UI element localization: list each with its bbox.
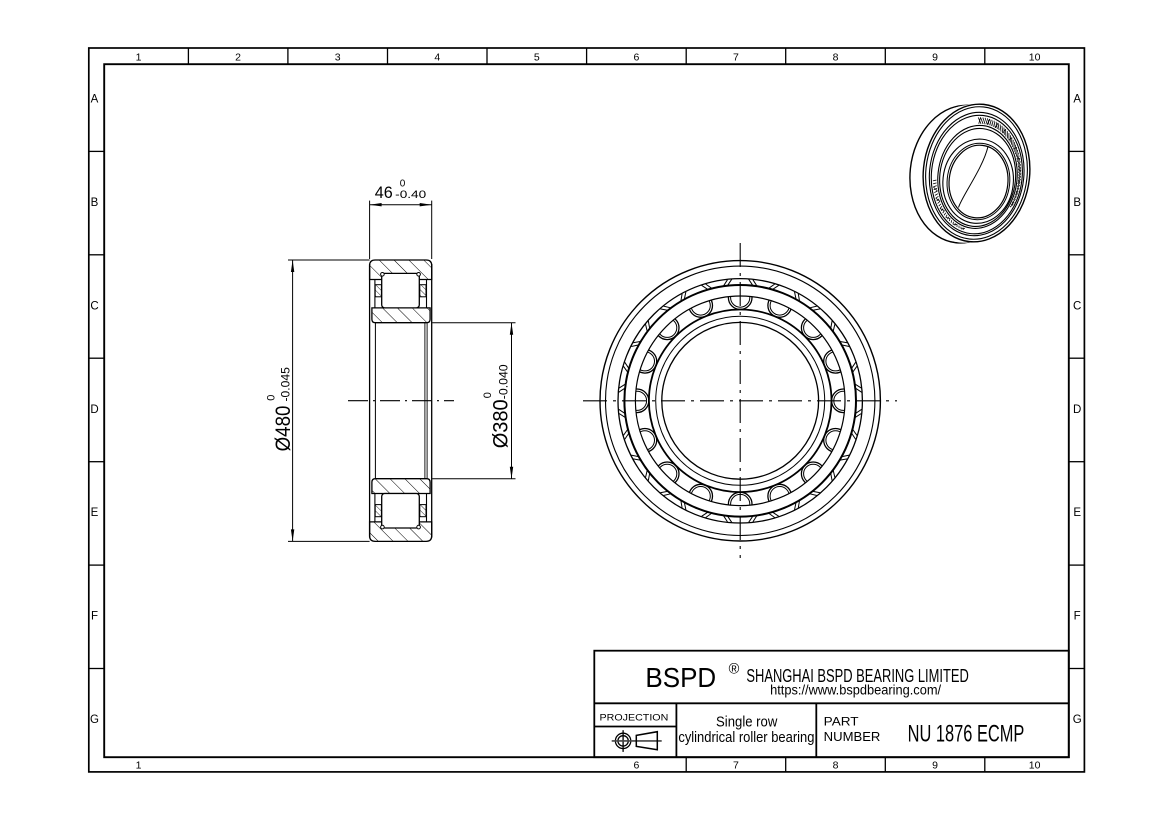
svg-text:1: 1 <box>136 759 142 771</box>
svg-text:7: 7 <box>733 51 739 63</box>
svg-text:PART: PART <box>824 715 860 729</box>
svg-text:®: ® <box>729 662 740 678</box>
svg-text:B: B <box>91 197 99 209</box>
svg-text:PROJECTION: PROJECTION <box>600 712 669 723</box>
svg-text:NUMBER: NUMBER <box>824 730 881 744</box>
svg-text:10: 10 <box>1029 51 1041 63</box>
svg-text:4: 4 <box>434 51 440 63</box>
svg-text:3: 3 <box>335 51 341 63</box>
svg-text:E: E <box>1073 507 1081 519</box>
svg-text:9: 9 <box>932 759 938 771</box>
svg-text:10: 10 <box>1029 759 1041 771</box>
svg-text:D: D <box>90 404 98 416</box>
svg-text:8: 8 <box>833 51 839 63</box>
svg-text:6: 6 <box>633 759 639 771</box>
svg-text:-0.045: -0.045 <box>281 367 293 401</box>
svg-text:C: C <box>1073 300 1081 312</box>
svg-text:NU 1876 ECMP: NU 1876 ECMP <box>908 721 1025 748</box>
svg-text:https://www.bspdbearing.com/: https://www.bspdbearing.com/ <box>770 683 941 699</box>
svg-text:0: 0 <box>266 395 278 401</box>
svg-text:9: 9 <box>932 51 938 63</box>
svg-text:0: 0 <box>400 178 406 189</box>
svg-text:Ø480: Ø480 <box>271 406 295 452</box>
svg-text:46: 46 <box>375 183 393 202</box>
svg-text:F: F <box>91 611 98 623</box>
svg-text:G: G <box>1073 714 1082 726</box>
svg-text:C: C <box>90 300 98 312</box>
svg-text:A: A <box>91 94 99 106</box>
svg-text:8: 8 <box>833 759 839 771</box>
svg-text:2: 2 <box>235 51 241 63</box>
svg-text:D: D <box>1073 404 1081 416</box>
svg-text:-0.40: -0.40 <box>395 189 426 201</box>
svg-text:cylindrical roller bearing: cylindrical roller bearing <box>678 729 814 746</box>
svg-text:0: 0 <box>482 392 494 398</box>
svg-text:E: E <box>91 507 99 519</box>
svg-text:5: 5 <box>534 51 540 63</box>
svg-text:-0.040: -0.040 <box>499 364 511 399</box>
svg-text:G: G <box>90 714 99 726</box>
svg-text:BSPD: BSPD <box>645 662 716 693</box>
svg-text:6: 6 <box>633 51 639 63</box>
svg-text:7: 7 <box>733 759 739 771</box>
svg-text:A: A <box>1073 94 1081 106</box>
svg-text:Ø380: Ø380 <box>489 399 513 448</box>
svg-text:B: B <box>1073 197 1081 209</box>
svg-text:F: F <box>1074 611 1081 623</box>
svg-text:1: 1 <box>136 51 142 63</box>
